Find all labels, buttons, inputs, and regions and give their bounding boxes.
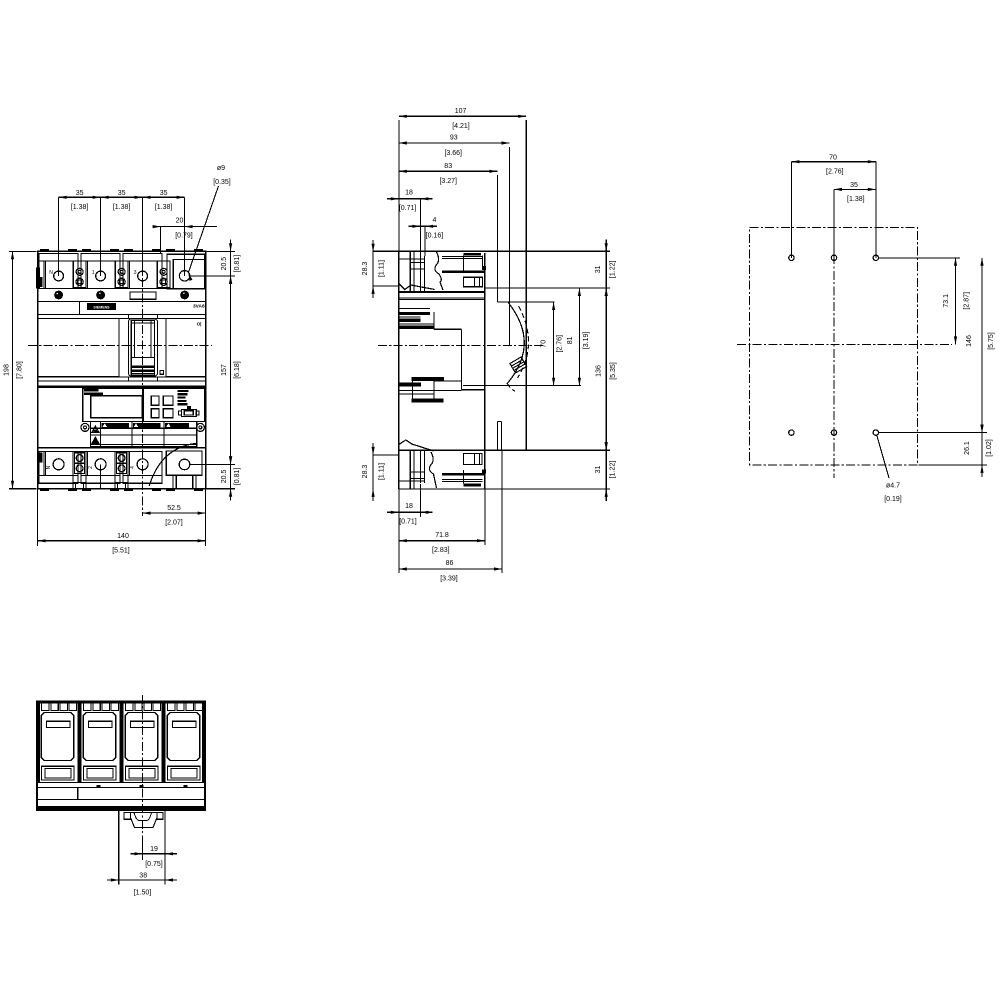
svg-text:[0.71]: [0.71] <box>399 205 417 212</box>
svg-text:[1.11]: [1.11] <box>378 260 385 277</box>
svg-text:[2.76]: [2.76] <box>556 335 563 353</box>
svg-text:136: 136 <box>596 365 603 377</box>
svg-text:[1.22]: [1.22] <box>610 461 617 479</box>
svg-text:107: 107 <box>455 108 467 115</box>
svg-text:35: 35 <box>160 190 168 197</box>
svg-text:81: 81 <box>567 336 574 344</box>
svg-text:[2.76]: [2.76] <box>826 169 844 176</box>
svg-text:ø9: ø9 <box>217 165 225 172</box>
svg-text:73.1: 73.1 <box>943 294 950 308</box>
svg-text:[1.38]: [1.38] <box>71 204 89 211</box>
svg-text:70: 70 <box>829 154 837 161</box>
svg-text:[2.87]: [2.87] <box>964 292 971 310</box>
svg-text:20: 20 <box>176 218 184 225</box>
svg-text:[1.38]: [1.38] <box>847 196 865 203</box>
svg-text:26.1: 26.1 <box>964 441 971 455</box>
svg-text:[2.07]: [2.07] <box>165 520 183 527</box>
svg-text:20.5: 20.5 <box>221 257 228 271</box>
svg-text:[5.35]: [5.35] <box>610 362 617 380</box>
svg-text:[1.02]: [1.02] <box>986 439 993 457</box>
svg-text:157: 157 <box>221 364 228 376</box>
svg-text:38: 38 <box>139 873 147 880</box>
svg-text:4: 4 <box>432 217 436 224</box>
svg-text:[1.50]: [1.50] <box>134 890 152 897</box>
svg-text:28.3: 28.3 <box>362 262 369 276</box>
svg-text:[1.38]: [1.38] <box>155 204 173 211</box>
svg-text:[6.18]: [6.18] <box>234 361 241 379</box>
svg-text:SIEMENS: SIEMENS <box>93 306 110 310</box>
svg-text:[1.22]: [1.22] <box>610 260 617 278</box>
svg-text:4: 4 <box>130 466 136 469</box>
svg-text:[1.38]: [1.38] <box>113 204 131 211</box>
svg-text:[7.80]: [7.80] <box>16 361 23 379</box>
svg-text:[0.79]: [0.79] <box>175 233 193 240</box>
svg-text:198: 198 <box>3 364 10 376</box>
svg-text:70: 70 <box>540 340 547 348</box>
svg-text:35: 35 <box>118 190 126 197</box>
svg-text:86: 86 <box>446 560 454 567</box>
svg-text:3VA8: 3VA8 <box>193 303 205 309</box>
svg-text:[5.51]: [5.51] <box>112 547 130 554</box>
svg-text:20.5: 20.5 <box>221 469 228 483</box>
svg-text:1: 1 <box>92 270 95 276</box>
svg-text:31: 31 <box>595 466 602 474</box>
svg-text:[0.71]: [0.71] <box>399 519 417 526</box>
svg-text:[0.81]: [0.81] <box>234 255 241 273</box>
svg-text:[5.75]: [5.75] <box>988 332 995 350</box>
svg-text:146: 146 <box>966 335 973 347</box>
svg-text:ø4.7: ø4.7 <box>886 483 900 490</box>
svg-text:[0.75]: [0.75] <box>145 861 163 868</box>
svg-text:28.3: 28.3 <box>362 465 369 479</box>
svg-text:[0.35]: [0.35] <box>213 179 231 186</box>
svg-text:[0.16]: [0.16] <box>426 233 444 240</box>
svg-text:71.8: 71.8 <box>435 532 449 539</box>
svg-text:N: N <box>49 270 53 276</box>
svg-text:[3.27]: [3.27] <box>439 178 457 185</box>
svg-text:18: 18 <box>405 190 413 197</box>
svg-text:2: 2 <box>88 466 94 469</box>
svg-text:19: 19 <box>150 846 158 853</box>
svg-text:[2.83]: [2.83] <box>432 547 450 554</box>
svg-text:52.5: 52.5 <box>167 505 181 512</box>
svg-text:[3.19]: [3.19] <box>583 332 590 350</box>
svg-text:N: N <box>46 465 52 469</box>
svg-text:[3.39]: [3.39] <box>440 575 458 582</box>
svg-text:[1.11]: [1.11] <box>378 463 385 480</box>
svg-text:93: 93 <box>450 135 458 142</box>
svg-text:[0.19]: [0.19] <box>884 496 902 503</box>
svg-text:18: 18 <box>405 503 413 510</box>
svg-text:140: 140 <box>117 533 129 540</box>
svg-text:35: 35 <box>850 182 858 189</box>
svg-text:31: 31 <box>595 265 602 273</box>
svg-text:[3.66]: [3.66] <box>444 150 462 157</box>
svg-text:[0.81]: [0.81] <box>234 468 241 486</box>
svg-text:O|: O| <box>197 322 202 327</box>
svg-text:83: 83 <box>444 163 452 170</box>
svg-text:3: 3 <box>134 270 137 276</box>
svg-text:35: 35 <box>76 190 84 197</box>
svg-text:[4.21]: [4.21] <box>452 123 470 130</box>
